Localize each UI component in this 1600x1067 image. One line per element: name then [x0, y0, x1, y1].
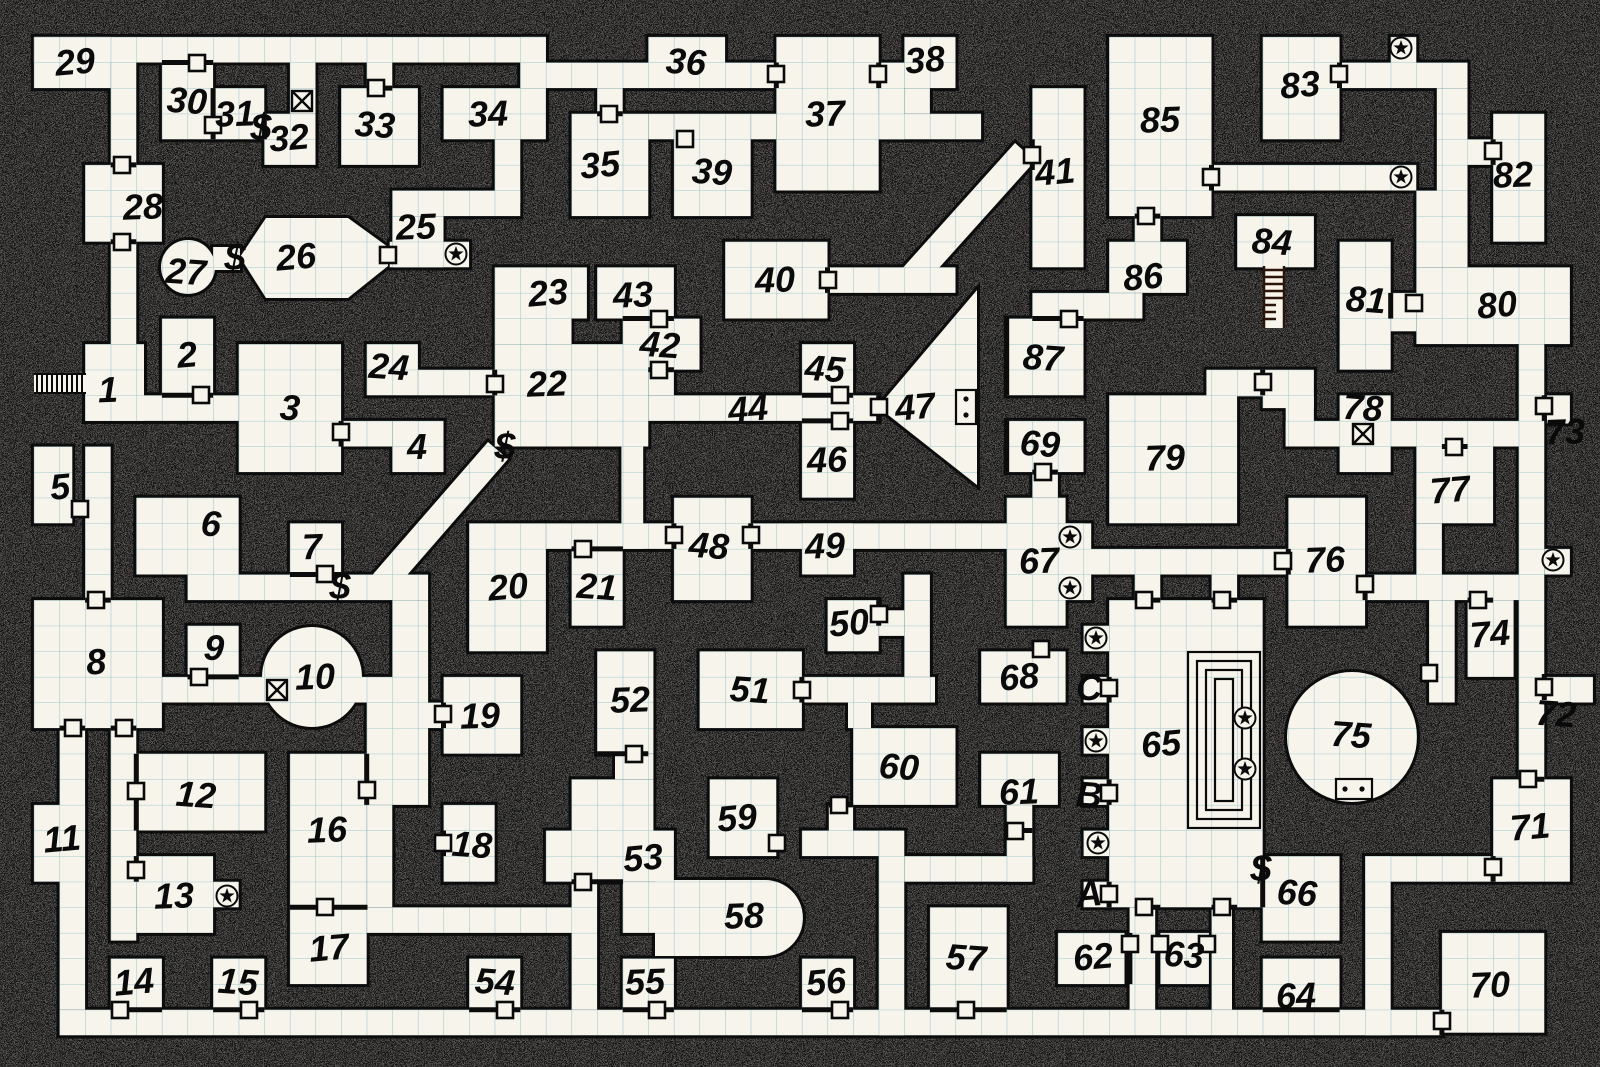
svg-text:17: 17 [307, 925, 352, 970]
svg-text:42: 42 [638, 323, 682, 367]
svg-text:A: A [1073, 872, 1103, 915]
svg-text:85: 85 [1139, 98, 1181, 140]
svg-text:18: 18 [451, 823, 494, 867]
svg-text:68: 68 [997, 654, 1040, 698]
svg-text:47: 47 [892, 384, 938, 429]
svg-text:69: 69 [1019, 422, 1062, 466]
svg-text:86: 86 [1121, 254, 1165, 298]
svg-text:20: 20 [485, 564, 529, 608]
svg-text:$: $ [223, 237, 246, 279]
svg-text:71: 71 [1508, 804, 1551, 848]
svg-text:81: 81 [1345, 278, 1388, 322]
svg-text:27: 27 [164, 250, 210, 294]
svg-text:72: 72 [1535, 692, 1578, 736]
svg-text:83: 83 [1278, 62, 1321, 106]
svg-text:39: 39 [691, 150, 734, 194]
svg-text:6: 6 [200, 502, 224, 544]
svg-text:2: 2 [174, 333, 199, 376]
svg-text:$: $ [328, 566, 351, 608]
svg-text:$: $ [1249, 848, 1272, 890]
svg-text:23: 23 [525, 270, 569, 314]
svg-text:40: 40 [753, 258, 795, 300]
svg-text:25: 25 [394, 205, 437, 247]
svg-text:B: B [1075, 773, 1104, 816]
svg-text:C: C [1075, 667, 1103, 709]
svg-text:10: 10 [294, 655, 335, 697]
svg-text:64: 64 [1275, 974, 1316, 1016]
svg-text:22: 22 [525, 362, 567, 404]
svg-text:76: 76 [1304, 538, 1346, 580]
svg-text:77: 77 [1428, 467, 1473, 512]
svg-text:49: 49 [803, 524, 845, 566]
svg-text:15: 15 [217, 960, 261, 1004]
svg-text:58: 58 [723, 894, 764, 936]
svg-text:29: 29 [52, 39, 96, 83]
svg-text:36: 36 [665, 40, 709, 84]
svg-text:57: 57 [945, 936, 990, 980]
svg-text:28: 28 [121, 185, 163, 227]
svg-text:19: 19 [459, 694, 500, 736]
svg-text:24: 24 [367, 345, 411, 389]
svg-text:30: 30 [166, 79, 209, 123]
svg-text:33: 33 [354, 103, 397, 147]
svg-text:67: 67 [1018, 539, 1061, 581]
svg-text:7: 7 [301, 526, 324, 568]
svg-text:32: 32 [267, 115, 310, 159]
svg-text:74: 74 [1468, 611, 1511, 655]
svg-text:53: 53 [621, 835, 664, 879]
svg-text:87: 87 [1022, 336, 1067, 380]
svg-text:78: 78 [1342, 386, 1385, 430]
svg-text:37: 37 [804, 92, 847, 134]
svg-text:$: $ [493, 426, 516, 468]
svg-text:3: 3 [279, 386, 302, 428]
svg-text:73: 73 [1544, 410, 1585, 452]
svg-text:44: 44 [725, 386, 769, 430]
svg-text:75: 75 [1330, 713, 1374, 757]
svg-text:16: 16 [306, 808, 348, 850]
svg-text:55: 55 [624, 960, 666, 1002]
svg-text:62: 62 [1071, 934, 1114, 978]
svg-text:38: 38 [903, 37, 946, 81]
svg-text:70: 70 [1469, 963, 1510, 1005]
svg-text:8: 8 [84, 640, 108, 683]
svg-text:56: 56 [804, 959, 848, 1003]
svg-text:11: 11 [42, 816, 83, 860]
svg-text:52: 52 [609, 678, 650, 720]
svg-text:51: 51 [729, 668, 772, 712]
svg-text:31: 31 [214, 92, 255, 134]
svg-text:4: 4 [405, 426, 427, 468]
svg-text:66: 66 [1276, 871, 1320, 915]
svg-text:35: 35 [578, 142, 622, 186]
svg-text:82: 82 [1492, 153, 1533, 195]
svg-text:26: 26 [273, 234, 318, 279]
svg-text:13: 13 [153, 874, 194, 916]
svg-text:45: 45 [803, 347, 848, 391]
svg-text:63: 63 [1163, 933, 1206, 977]
svg-text:48: 48 [687, 524, 731, 568]
svg-text:46: 46 [805, 438, 848, 480]
svg-text:12: 12 [175, 773, 218, 817]
svg-text:65: 65 [1139, 721, 1183, 765]
svg-text:21: 21 [575, 565, 619, 609]
svg-text:61: 61 [998, 770, 1039, 812]
svg-text:9: 9 [203, 626, 226, 668]
svg-text:14: 14 [112, 959, 155, 1003]
svg-text:80: 80 [1475, 282, 1518, 326]
svg-text:79: 79 [1144, 436, 1185, 478]
svg-text:50: 50 [827, 600, 870, 644]
svg-text:43: 43 [611, 273, 653, 315]
svg-text:41: 41 [1032, 149, 1076, 193]
svg-text:84: 84 [1251, 220, 1294, 264]
svg-text:34: 34 [467, 92, 508, 134]
svg-text:59: 59 [715, 795, 758, 839]
svg-text:60: 60 [878, 745, 921, 789]
svg-text:1: 1 [97, 369, 118, 411]
svg-text:54: 54 [474, 960, 517, 1004]
